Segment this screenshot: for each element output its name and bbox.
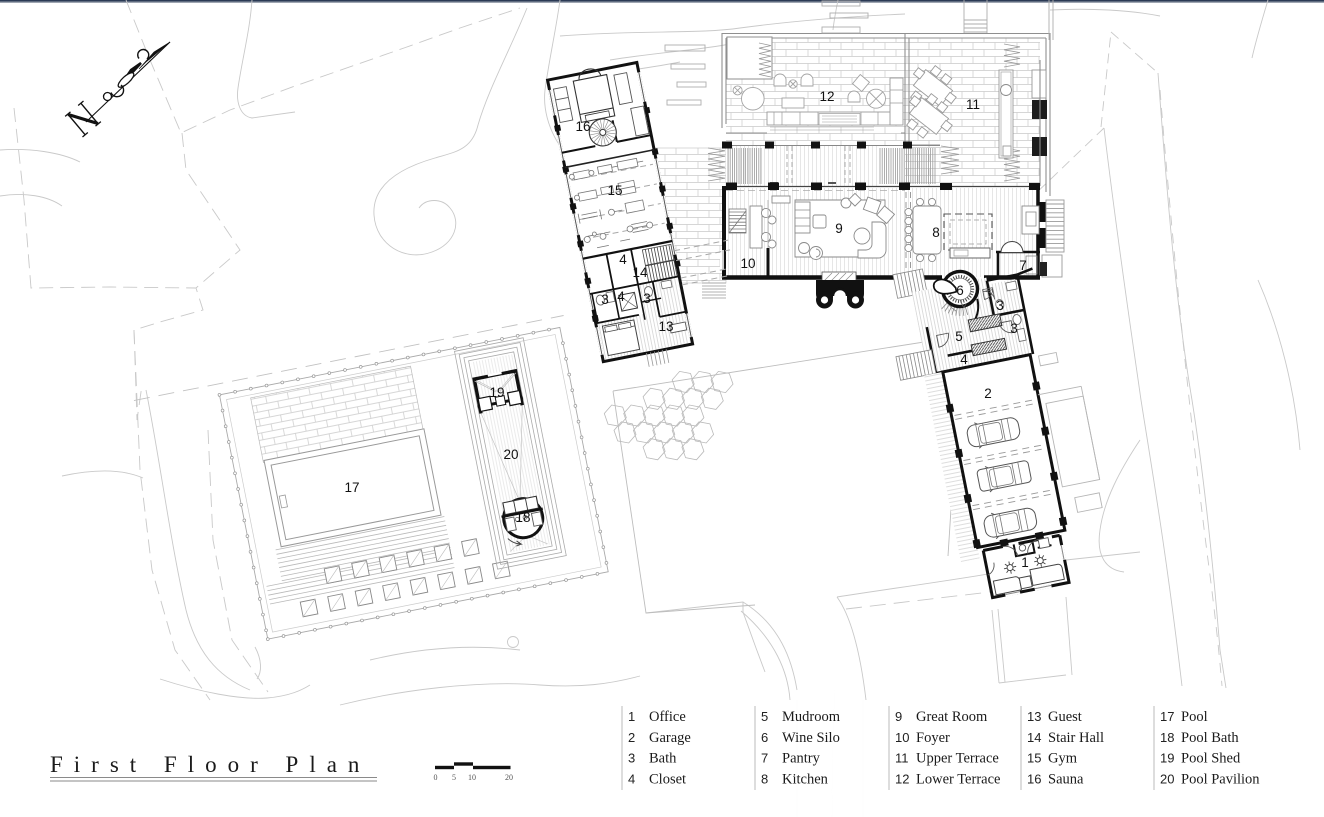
svg-text:Sauna: Sauna (1048, 772, 1084, 788)
svg-text:Foyer: Foyer (916, 730, 950, 746)
svg-text:20: 20 (505, 773, 513, 782)
svg-text:19: 19 (1160, 751, 1174, 766)
svg-text:2: 2 (984, 386, 992, 401)
svg-text:17: 17 (344, 480, 359, 495)
svg-text:Office: Office (649, 709, 686, 725)
svg-text:3: 3 (628, 751, 635, 766)
svg-text:13: 13 (1027, 709, 1041, 724)
svg-text:0: 0 (434, 773, 438, 782)
svg-text:3: 3 (601, 292, 609, 307)
svg-text:1: 1 (628, 709, 635, 724)
svg-text:20: 20 (1160, 772, 1174, 787)
svg-text:Kitchen: Kitchen (782, 772, 829, 788)
svg-text:12: 12 (819, 89, 834, 104)
svg-text:Bath: Bath (649, 751, 677, 767)
svg-text:5: 5 (452, 773, 456, 782)
svg-text:3: 3 (996, 298, 1004, 313)
svg-text:8: 8 (932, 225, 940, 240)
svg-text:16: 16 (575, 119, 590, 134)
svg-text:Garage: Garage (649, 730, 691, 746)
svg-text:Lower Terrace: Lower Terrace (916, 772, 1000, 788)
svg-text:1: 1 (1021, 555, 1029, 570)
svg-text:Closet: Closet (649, 772, 686, 788)
svg-text:Pool Pavilion: Pool Pavilion (1181, 772, 1260, 788)
svg-text:15: 15 (1027, 751, 1041, 766)
svg-text:9: 9 (895, 709, 902, 724)
svg-text:5: 5 (955, 329, 963, 344)
svg-text:14: 14 (1027, 730, 1041, 745)
svg-text:3: 3 (1010, 321, 1018, 336)
svg-text:Pantry: Pantry (782, 751, 821, 767)
svg-text:17: 17 (1160, 709, 1174, 724)
svg-text:Pool Bath: Pool Bath (1181, 730, 1239, 746)
svg-text:12: 12 (895, 772, 909, 787)
svg-text:First Floor Plan: First Floor Plan (50, 752, 370, 777)
svg-text:Pool: Pool (1181, 709, 1208, 725)
svg-text:Pool Shed: Pool Shed (1181, 751, 1241, 767)
svg-text:10: 10 (895, 730, 909, 745)
svg-text:10: 10 (740, 256, 755, 271)
svg-text:Great Room: Great Room (916, 709, 988, 725)
svg-text:11: 11 (895, 751, 909, 766)
svg-text:4: 4 (960, 352, 968, 367)
svg-text:9: 9 (835, 221, 843, 236)
svg-text:16: 16 (1027, 772, 1041, 787)
svg-text:8: 8 (761, 772, 768, 787)
svg-text:Gym: Gym (1048, 751, 1078, 767)
svg-text:14: 14 (632, 265, 648, 280)
svg-text:4: 4 (619, 252, 627, 267)
svg-text:5: 5 (761, 709, 768, 724)
svg-text:18: 18 (1160, 730, 1174, 745)
svg-text:Mudroom: Mudroom (782, 709, 841, 725)
svg-text:19: 19 (489, 385, 504, 400)
svg-text:6: 6 (761, 730, 768, 745)
svg-text:Upper Terrace: Upper Terrace (916, 751, 999, 767)
svg-text:4: 4 (628, 772, 635, 787)
svg-text:20: 20 (503, 447, 518, 462)
svg-text:Wine Silo: Wine Silo (782, 730, 840, 746)
svg-text:Guest: Guest (1048, 709, 1082, 725)
svg-text:13: 13 (658, 319, 673, 334)
svg-text:15: 15 (607, 183, 622, 198)
svg-text:11: 11 (966, 97, 980, 112)
svg-text:18: 18 (515, 510, 530, 525)
svg-text:Stair Hall: Stair Hall (1048, 730, 1104, 746)
svg-text:3: 3 (643, 291, 651, 306)
svg-text:4: 4 (617, 289, 625, 304)
svg-text:10: 10 (468, 773, 476, 782)
svg-text:7: 7 (761, 751, 768, 766)
svg-text:6: 6 (956, 283, 964, 298)
svg-text:7: 7 (1019, 258, 1027, 273)
svg-text:2: 2 (628, 730, 635, 745)
